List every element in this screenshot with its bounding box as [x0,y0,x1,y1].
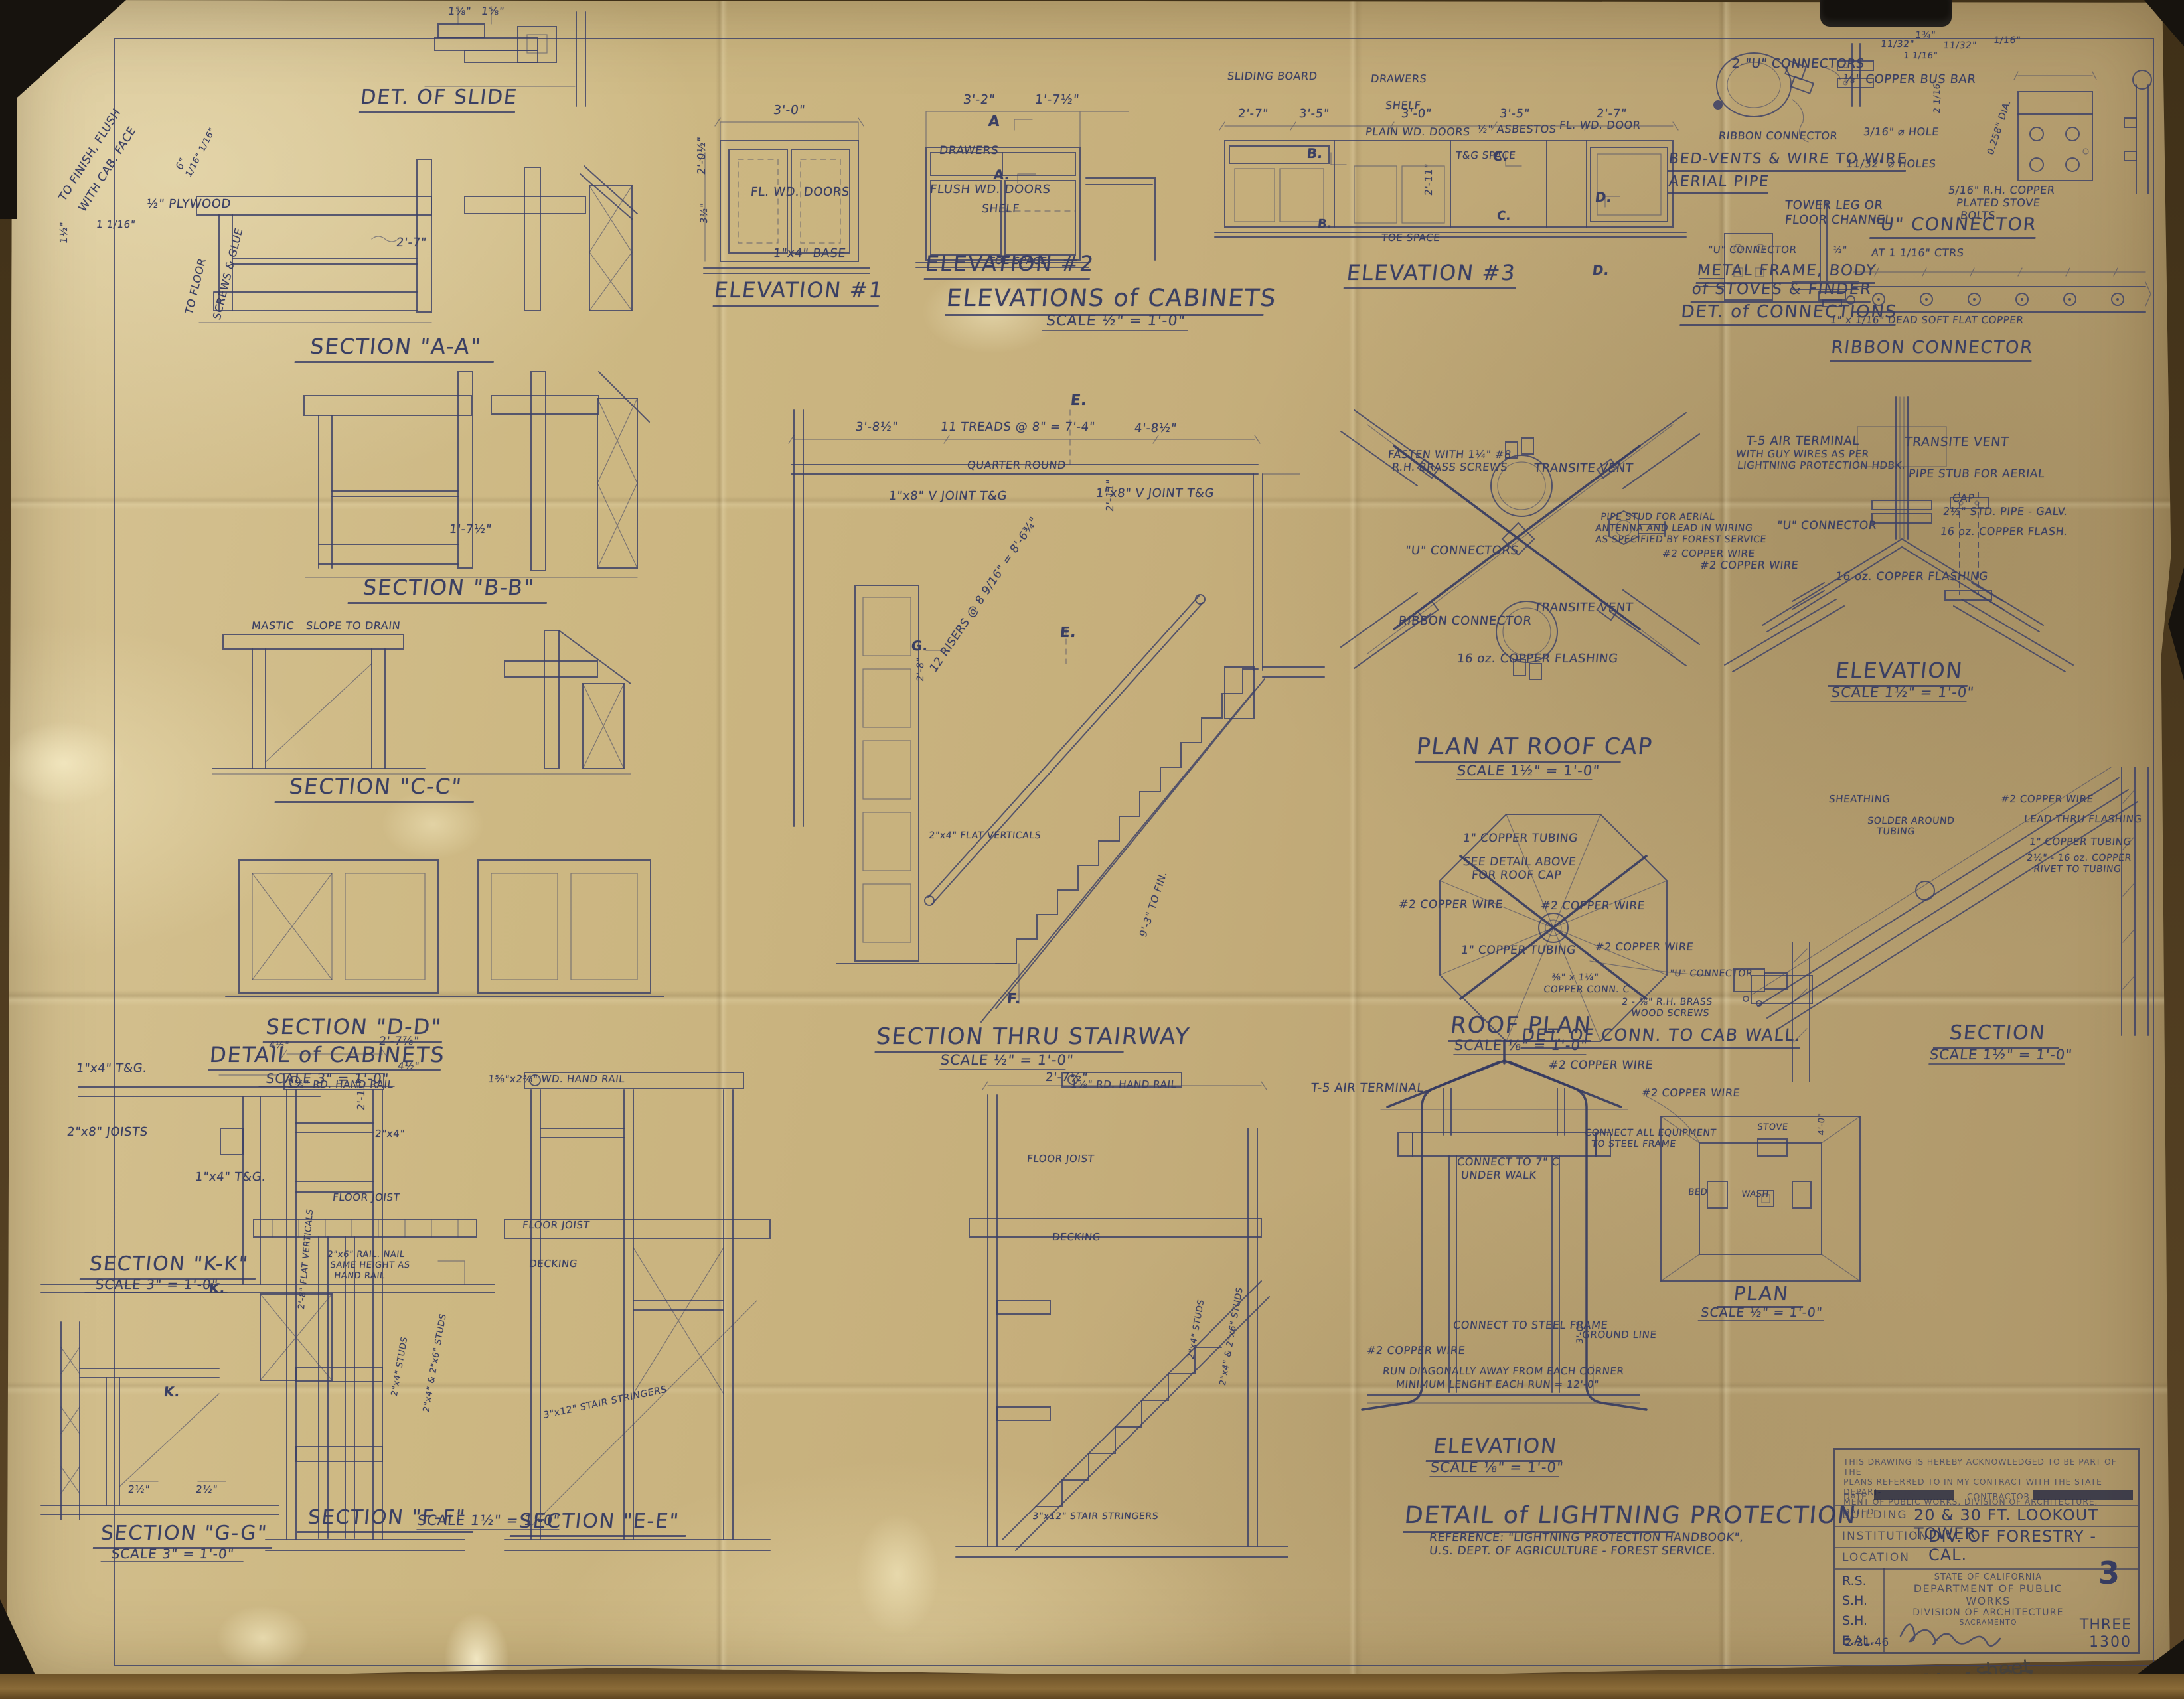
label-shelf-label-2: SHELF [981,203,1020,216]
label-copper-wire-label-rp1: #2 COPPER WIRE [1398,899,1504,911]
label-elevation-tower-title: ELEVATION [1426,1435,1565,1462]
label-lead-flashing-label: LEAD THRU FLASHING [2023,814,2142,825]
label-section-ee-title: SECTION "E-E" [510,1511,688,1537]
binder-clip [1820,0,1952,27]
label-plain-wd-doors-label: PLAIN WD. DOORS [1365,126,1471,138]
label-copper-wire-label-cap: #2 COPPER WIRE [1662,548,1755,559]
label-holes-11-32-label: 11/32" ⌀ HOLES [1845,158,1936,170]
label-section-right-scale: SCALE 1½" = 1'-0" [1928,1047,2067,1065]
label-dim-3-0-b: 3'-0" [1576,1321,1586,1344]
label-plywood-label: ½" PLYWOOD [146,198,232,211]
label-copper-wire-label-el: #2 COPPER WIRE [1699,559,1799,571]
label-t5-air-terminal-label-3: LIGHTNING PROTECTION HDBK. [1737,460,1906,471]
label-rivet-label-2: RIVET TO TUBING [2033,865,2122,875]
label-marker-a-1: A [987,114,1000,131]
label-dim-4-8-2: 4'-8½" [1134,422,1178,435]
label-dim-1-7-2-b: 1'-7½" [1034,93,1080,107]
label-run-diagonally-label-1: RUN DIAGONALLY AWAY FROM EACH CORNER [1382,1366,1624,1377]
label-copper-flash-label: 16 oz. COPPER FLASH. [1940,526,2068,538]
label-cap-label: CAP [1952,492,1975,504]
label-dim-1-16-c: 1/16" [1993,36,2021,46]
label-det-conn-wall-title: DET. OF CONN. TO CAB WALL. [1520,1026,1802,1049]
label-elevations-cabinets-scale: SCALE ½" = 1'-0" [1042,313,1190,331]
label-rivet-label-1: 2½" - 16 oz. COPPER [2026,853,2132,864]
label-dim-3-2: 3'-2" [963,93,996,107]
label-marker-b-1: B. [1306,146,1324,161]
label-copper-wire-label-rp2: #2 COPPER WIRE [1540,900,1646,913]
label-flush-wd-doors-label: FLUSH WD. DOORS [929,183,1052,196]
label-wood-screws-label-1: 2 - ⅜" R.H. BRASS [1621,997,1713,1008]
label-section-bb-title: SECTION "B-B" [348,576,550,604]
label-t5-air-terminal-label-2: WITH GUY WIRES AS PER [1735,449,1869,460]
label-elevation-tower-scale: SCALE ⅛" = 1'-0" [1429,1460,1561,1477]
label-dim-1-7-2-a: 1'-7½" [449,523,493,536]
label-sheathing-label: SHEATHING [1828,794,1891,805]
section-kk-drawing [41,1075,495,1380]
label-tg-label-a: 1"x4" T&G. [76,1062,148,1075]
section-bb-drawing [304,372,649,577]
label-fl-wd-door-label: FL. WD. DOOR [1559,119,1641,131]
label-slide-dim-a: 1⅝" [447,5,472,17]
sheet-word: THREE [2080,1617,2132,1633]
label-u-connector-label-3: "U" CONNECTOR [1669,969,1753,980]
label-marker-k-1: K. [208,1281,226,1295]
label-drawers-label-3: DRAWERS [1370,73,1427,85]
label-drawers-label-2: DRAWERS [939,145,999,157]
label-marker-a-2: A. [993,167,1011,182]
label-section-stairway-scale: SCALE ½" = 1'-0" [939,1053,1067,1070]
approval-initials: R.S. [1842,1574,1867,1588]
label-dim-half: ½" [1832,246,1847,256]
label-section-cc-title: SECTION "C-C" [275,775,477,803]
stairway-drawing [789,410,1324,1022]
label-see-detail-label-2: FOR ROOF CAP [1471,869,1562,882]
label-copper-wire-label-d: #2 COPPER WIRE [1595,941,1694,953]
label-pipe-stud-label-3: AS SPECIFIED BY FOREST SERVICE [1595,535,1766,546]
label-hand-rail-label-mid: 1⅝" RD. HAND RAIL [1070,1079,1177,1090]
contractor-label: CONTRACTOR [1967,1491,2030,1501]
label-dim-2-7-a: 2'-7" [396,236,428,250]
label-dim-1-1-16: 1 1/16" [96,219,136,230]
label-decking-label-mid: DECKING [1052,1232,1101,1243]
label-u-connectors-label: "U" CONNECTORS [1405,544,1520,557]
label-copper-tubing-label-3: 1" COPPER TUBING [2029,836,2132,848]
label-t5-air-terminal-label-4: T-5 AIR TERMINAL [1310,1082,1425,1095]
label-marker-g: G. [911,638,929,653]
label-at-ctrs-label: AT 1 1/16" CTRS [1871,247,1964,259]
label-bed-label: BED [1687,1188,1707,1198]
label-lightning-title: DETAIL of LIGHTNING PROTECTION [1403,1503,1678,1533]
label-dim-2-2-a: 2½" [127,1484,151,1495]
label-copper-bus-bar-label: ⅛" COPPER BUS BAR [1843,73,1977,86]
label-dim-2-8: 2'-8" [916,657,927,682]
label-floor-joist-label-ff: FLOOR JOIST [332,1192,400,1203]
title-block: THIS DRAWING IS HEREBY ACKNOWLEDGED TO B… [1833,1448,2140,1654]
label-v-joint-label-left: 1"x8" V JOINT T&G [888,490,1008,503]
label-copper-wire-label-t2: #2 COPPER WIRE [1366,1345,1466,1357]
label-dim-11-32-a: 11/32" [1880,40,1914,50]
contractor-redaction-bar [2033,1490,2133,1500]
table-edge-left [0,0,17,219]
date-redaction-bar [1874,1490,1954,1500]
label-hand-rail-label-ff: 1⅝" RD. HAND RAIL [287,1079,394,1090]
label-pipe-stud-label-1: PIPE STUD FOR AERIAL [1600,512,1715,523]
label-rail-note-label-3: HAND RAIL [333,1272,385,1282]
label-stove-label: STOVE [1756,1123,1788,1133]
label-quarter-round-label: QUARTER ROUND [967,459,1067,471]
label-ground-line-label: GROUND LINE [1581,1329,1657,1341]
label-dim-1-3-4: 1¾" [1914,31,1936,41]
section-gg-drawing [41,1322,279,1520]
label-section-gg-title: SECTION "G-G" [93,1522,275,1549]
section-dd-drawing [226,860,664,997]
label-wash-label: WASH [1741,1190,1769,1200]
label-treads-label: 11 TREADS @ 8" = 7'-4" [940,421,1096,434]
label-dim-4-2-b: 4½" [268,1041,289,1051]
label-dim-2-11-b: 2'-11" [1105,479,1116,512]
label-dim-2-1-16: 2 1/16" [1933,78,1943,113]
label-floor-joist-label-ee: FLOOR JOIST [522,1220,590,1231]
label-tg-label-b: 1"x4" T&G. [195,1171,267,1184]
label-dim-2-7-8: 2'-7⅞" [378,1035,420,1048]
label-metal-frame-heading-2: of STOVES & FINDER [1691,281,1873,303]
label-dim-4-0: 4'-0" [1818,1112,1828,1136]
label-tg-space-label: T&G SPACE [1455,150,1516,161]
label-dim-2-0-2: 2'-0½" [696,136,708,175]
label-dim-1-2: 1½" [58,221,70,244]
label-t5-air-terminal-label-1: T-5 AIR TERMINAL [1746,435,1860,448]
label-ribbon-connector-heading: RIBBON CONNECTOR [1830,338,2034,362]
label-std-pipe-label: 2½" STD. PIPE - GALV. [1942,506,2068,518]
agency-line: STATE OF CALIFORNIA [1895,1572,2081,1582]
blueprint-photo: DET. OF SLIDE1⅝"1⅝"TO FINISH, FLUSHWITH … [0,0,2184,1699]
stove-bolt-drawing [2124,70,2151,194]
label-copper-flashing-label-1: 16 oz. COPPER FLASHING [1456,652,1619,666]
label-copper-flashing-label-2: 16 oz. COPPER FLASHING [1835,571,1989,583]
label-plan-roof-cap-title: PLAN AT ROOF CAP [1415,734,1624,763]
label-floor-joist-label-mid: FLOOR JOIST [1026,1153,1095,1165]
det-connections-drawing [1853,268,2151,312]
label-marker-d-2: D. [1592,263,1610,277]
label-connect-7c-label-2: UNDER WALK [1460,1169,1537,1181]
label-dim-3-8-2: 3'-8½" [855,421,899,434]
table-bottom-strip [0,1674,2184,1699]
institution-label: INSTITUTION [1842,1530,1928,1543]
label-elevation3-title: ELEVATION #3 [1344,261,1519,289]
section-ff-drawing [254,1050,477,1550]
label-dim-2-2-b: 2½" [195,1484,218,1495]
label-stove-bolts-label-2: PLATED STOVE [1956,197,2041,209]
label-wood-screws-label-2: WOOD SCREWS [1630,1009,1709,1019]
label-dead-soft-copper-label: 1" x 1/16" DEAD SOFT FLAT COPPER [1830,315,2024,326]
label-rail-note-label-2: SAME HEIGHT AS [329,1261,410,1271]
label-transite-vent-label-1: TRANSITE VENT [1533,462,1634,475]
section-cc-drawing [212,630,631,774]
label-rail-note-label-1: 2"x6" RAIL. NAIL [327,1250,405,1260]
label-base-label: 1"x4" BASE [773,247,846,260]
approval-initials: S.H. [1842,1593,1867,1608]
label-marker-e-1: E. [1069,393,1087,409]
label-see-detail-label-1: SEE DETAIL ABOVE [1462,856,1577,869]
label-plan-roof-cap-scale: SCALE 1½" = 1'-0" [1456,763,1594,780]
label-section-stairway-title: SECTION THRU STAIRWAY [874,1024,1127,1053]
ack-line-1: THIS DRAWING IS HEREBY ACKNOWLEDGED TO B… [1843,1457,2130,1477]
location-label: LOCATION [1842,1551,1910,1564]
label-elevation1-title: ELEVATION #1 [713,279,882,307]
label-solder-label-2: TUBING [1876,827,1915,838]
label-elevation-right-scale: SCALE 1½" = 1'-0" [1830,685,1968,702]
label-det-of-slide-title: DET. OF SLIDE [359,86,518,113]
label-marker-d-1: D. [1595,190,1613,204]
label-copper-tubing-label-1: 1" COPPER TUBING [1462,832,1579,845]
label-section-kk-scale: SCALE 3" = 1'-0" [84,1277,229,1293]
label-dim-e3-1: 2'-7" [1237,108,1269,121]
label-u-connector-heading: "U" CONNECTOR [1869,215,2038,239]
label-dim-e3-4: 3'-5" [1499,108,1531,121]
label-plan-scale: SCALE ½" = 1'-0" [1698,1306,1826,1321]
agency-line: DEPARTMENT OF PUBLIC WORKS [1895,1582,2081,1607]
label-solder-label-1: SOLDER AROUND [1867,816,1955,827]
label-marker-c-2: C. [1496,210,1512,223]
label-stove-bolts-label-1: 5/16" R.H. COPPER [1948,185,2055,196]
label-elevation2-title: ELEVATION #2 [924,252,1093,280]
label-fl-wd-doors-label: FL. WD. DOORS [750,186,850,199]
label-run-diagonally-label-2: MINIMUM LENGHT EACH RUN = 12'-0" [1395,1379,1599,1390]
titleblock-date: 2-21-46 [1845,1636,1889,1649]
label-fasten-label-1: FASTEN WITH 1¼" #8 [1387,449,1512,461]
label-dim-1-1-16-b: 1 1/16" [1903,52,1938,62]
job-number: 1300 [2089,1634,2132,1651]
label-u-connector-label-2: "U" CONNECTOR [1776,520,1877,532]
label-u-connectors-2-label: 2-"U" CONNECTORS [1731,57,1865,71]
label-slide-dim-b: 1⅝" [481,5,505,17]
label-dim-2-11-a: 2'-11" [1423,163,1435,196]
bus-bar-drawing [2014,72,2096,181]
label-ribbon-connector-label-2: RIBBON CONNECTOR [1398,615,1533,628]
label-slope-drain-label: SLOPE TO DRAIN [305,620,401,632]
label-decking-label-ee: DECKING [528,1258,578,1270]
label-shelf-label-3: SHELF [1385,100,1421,111]
label-section-right-title: SECTION [1933,1022,2062,1049]
label-connect-equip-label-2: TO STEEL FRAME [1591,1140,1676,1150]
label-pipe-stub-label: PIPE STUB FOR AERIAL [1908,468,2045,480]
label-transite-vent-label-3: TRANSITE VENT [1904,435,2009,449]
label-dim-3-0-a: 3'-0" [773,104,806,117]
label-flat-verticals-label: 2"x4" FLAT VERTICALS [928,831,1042,842]
label-sliding-board-label: SLIDING BOARD [1227,70,1318,82]
label-reference-label-2: U.S. DEPT. OF AGRICULTURE - FOREST SERVI… [1429,1545,1717,1558]
label-aerial-pipe-heading: AERIAL PIPE [1668,174,1770,194]
lightning-plan-drawing [1646,1096,1860,1281]
label-marker-b-2: B. [1317,218,1333,231]
approval-initials: S.H. [1842,1613,1867,1628]
label-hand-rail-label-ee: 1⅝"x2⅝" WD. HAND RAIL [487,1074,625,1085]
label-dim-3-2-rot: 3½" [700,202,710,224]
label-tower-leg-label-1: TOWER LEG OR [1784,199,1884,212]
label-elevation-right-title: ELEVATION [1828,659,1970,687]
label-dim-4-2: 4½" [397,1061,420,1072]
label-plan-title: PLAN [1717,1283,1806,1308]
label-mastic-label: MASTIC [251,620,295,632]
label-ribbon-connector-small-label: RIBBON CONNECTOR [1718,130,1838,142]
label-section-gg-scale: SCALE 3" = 1'-0" [100,1546,245,1562]
label-dim-2x4: 2"x4" [374,1128,406,1140]
label-conn-clip-label-1: ⅜" x 1¼" [1551,973,1599,984]
label-section-aa-title: SECTION "A-A" [295,335,497,363]
label-stair-stringers-label-2: 3"x12" STAIR STRINGERS [1032,1512,1159,1522]
label-copper-tubing-label-2: 1" COPPER TUBING [1460,944,1577,957]
sheet-number: 3 [2098,1555,2120,1591]
label-conn-clip-label-2: COPPER CONN. C [1543,985,1630,996]
label-transite-vent-label-2: TRANSITE VENT [1533,601,1634,615]
label-section-kk-title: SECTION "K-K" [80,1253,258,1280]
date-label: DATE [1843,1491,1867,1501]
label-elevations-cabinets-title: ELEVATIONS of CABINETS [945,285,1267,316]
label-marker-k-2: K. [163,1384,181,1399]
label-dim-e3-2: 3'-5" [1298,108,1330,121]
label-marker-f: F. [1006,992,1022,1008]
label-dim-11-32-b: 11/32" [1942,41,1977,52]
label-copper-wire-label-t1: #2 COPPER WIRE [1548,1059,1654,1072]
label-marker-e-2: E. [1059,625,1077,642]
label-toe-space-label-3: TOE SPACE [1381,232,1441,244]
signature-scrawl [1895,1608,2015,1648]
label-copper-wire-label-p: #2 COPPER WIRE [1641,1087,1741,1099]
label-fasten-label-2: R.H. BRASS SCREWS [1391,461,1508,473]
label-u-connector-small-label: "U" CONNECTOR [1707,244,1797,256]
elevation3-drawing [1215,122,1686,237]
label-copper-wire-label-s: #2 COPPER WIRE [2000,794,2094,805]
roof-section-drawing [1751,767,2148,1035]
label-reference-label-1: REFERENCE: "LIGHTNING PROTECTION HANDBOO… [1429,1532,1745,1544]
label-asbestos-label: ½" ASBESTOS [1476,123,1557,135]
label-hole-3-16-label: 3/16" ⌀ HOLE [1863,126,1940,138]
label-pipe-stud-label-2: ANTENNA AND LEAD IN WIRING [1595,524,1753,534]
label-joists-label: 2"x8" JOISTS [66,1126,149,1139]
section-ee-drawing [505,1072,770,1550]
building-label: BUILDING [1842,1509,1908,1522]
label-connect-equip-label-1: CONNECT ALL EQUIPMENT [1584,1128,1717,1139]
label-connect-7c-label-1: CONNECT TO 7" C [1456,1156,1560,1168]
